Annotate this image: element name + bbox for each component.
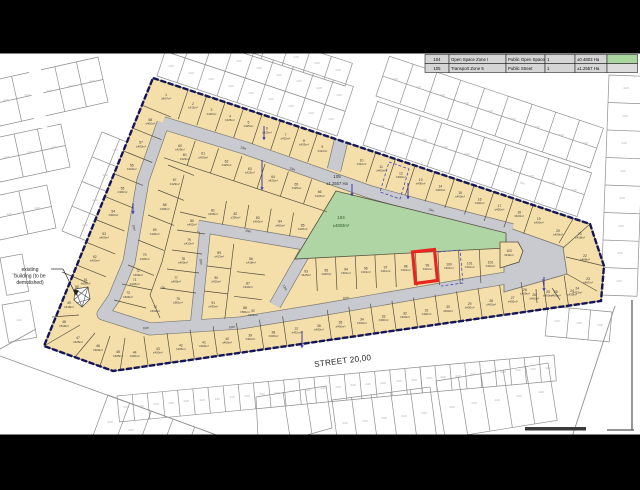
- svg-text:4x00: 4x00: [549, 181, 555, 185]
- svg-text:±400m²: ±400m²: [108, 213, 118, 217]
- svg-text:±400m²: ±400m²: [443, 309, 453, 313]
- svg-text:4x00: 4x00: [6, 212, 12, 216]
- svg-text:±400m²: ±400m²: [171, 280, 181, 284]
- svg-text:4x00: 4x00: [485, 371, 491, 375]
- svg-text:4x00: 4x00: [494, 398, 500, 402]
- svg-text:4x00: 4x00: [622, 114, 628, 118]
- svg-text:4x00: 4x00: [415, 85, 421, 89]
- svg-text:4x00: 4x00: [328, 117, 334, 121]
- svg-text:4x00: 4x00: [440, 375, 446, 379]
- svg-text:±400m²: ±400m²: [275, 223, 285, 227]
- svg-text:4x00: 4x00: [4, 155, 10, 159]
- svg-text:4x00: 4x00: [381, 416, 387, 420]
- svg-text:4x00: 4x00: [138, 404, 144, 408]
- svg-text:4x00: 4x00: [623, 86, 629, 90]
- svg-text:±418m²: ±418m²: [64, 305, 74, 309]
- svg-text:±400m²: ±400m²: [99, 236, 109, 240]
- svg-text:±412m²: ±412m²: [357, 162, 367, 166]
- svg-text:±400m²: ±400m²: [400, 315, 410, 319]
- svg-text:4x00: 4x00: [380, 381, 386, 385]
- svg-text:4x00: 4x00: [82, 223, 88, 227]
- svg-text:±519m²: ±519m²: [59, 324, 69, 328]
- svg-text:±436m²: ±436m²: [208, 212, 218, 216]
- svg-text:4x00: 4x00: [308, 111, 314, 115]
- svg-text:±400m²: ±400m²: [551, 293, 561, 297]
- svg-text:±401m²: ±401m²: [401, 268, 411, 272]
- svg-text:4x00: 4x00: [506, 167, 512, 171]
- svg-text:±408m²: ±408m²: [580, 258, 590, 262]
- svg-text:4x00: 4x00: [515, 368, 521, 372]
- svg-text:±405m²: ±405m²: [113, 354, 123, 358]
- svg-text:4x00: 4x00: [362, 419, 368, 423]
- svg-text:±400m²: ±400m²: [376, 169, 386, 173]
- svg-text:4x00: 4x00: [107, 420, 113, 424]
- svg-text:±425m²: ±425m²: [262, 130, 272, 134]
- svg-text:4x00: 4x00: [396, 379, 402, 383]
- svg-text:±420m²: ±420m²: [211, 279, 221, 283]
- svg-text:4x00: 4x00: [421, 411, 427, 415]
- svg-text:±413m²: ±413m²: [188, 106, 198, 110]
- svg-text:±400m²: ±400m²: [136, 144, 146, 148]
- svg-text:4x00: 4x00: [411, 378, 417, 382]
- svg-text:existing: existing: [22, 267, 39, 273]
- svg-text:±439m²: ±439m²: [208, 304, 218, 308]
- svg-text:4x00: 4x00: [112, 148, 118, 152]
- svg-text:±425m²: ±425m²: [281, 136, 291, 140]
- svg-text:4x00: 4x00: [3, 98, 9, 102]
- svg-text:±432m²: ±432m²: [504, 253, 514, 257]
- svg-text:±412m²: ±412m²: [317, 149, 327, 153]
- svg-text:±429m²: ±429m²: [170, 182, 180, 186]
- svg-text:±400m²: ±400m²: [357, 321, 367, 325]
- svg-text:4x00: 4x00: [516, 394, 522, 398]
- svg-text:4x00: 4x00: [89, 79, 95, 83]
- svg-text:±425m²: ±425m²: [245, 171, 255, 175]
- svg-text:4x00: 4x00: [128, 428, 134, 432]
- svg-text:demolished): demolished): [16, 280, 44, 286]
- svg-text:±1.2557 Ha: ±1.2557 Ha: [326, 181, 348, 186]
- svg-text:±406m²: ±406m²: [160, 207, 170, 211]
- svg-text:±429m²: ±429m²: [175, 148, 185, 152]
- svg-text:4x00: 4x00: [621, 141, 627, 145]
- svg-text:±400m²: ±400m²: [396, 175, 406, 179]
- svg-text:4x00: 4x00: [92, 198, 98, 202]
- svg-text:4x00: 4x00: [335, 68, 341, 72]
- svg-text:4x00: 4x00: [248, 91, 254, 95]
- svg-text:4x00: 4x00: [392, 77, 398, 81]
- svg-text:4x00: 4x00: [558, 133, 564, 137]
- svg-text:±401m²: ±401m²: [381, 269, 391, 273]
- svg-text:±425m²: ±425m²: [244, 124, 254, 128]
- svg-text:±413m²: ±413m²: [184, 242, 194, 246]
- svg-text:4x00: 4x00: [208, 77, 214, 81]
- svg-text:4x00: 4x00: [68, 84, 74, 88]
- svg-text:4x00: 4x00: [46, 89, 52, 93]
- svg-text:4x00: 4x00: [342, 421, 348, 425]
- svg-text:4x00: 4x00: [421, 138, 427, 142]
- svg-text:4x00: 4x00: [464, 152, 470, 156]
- svg-text:±400m²: ±400m²: [422, 312, 432, 316]
- svg-text:4x00: 4x00: [620, 169, 626, 173]
- svg-text:±425m²: ±425m²: [292, 186, 302, 190]
- svg-text:4x00: 4x00: [183, 399, 189, 403]
- svg-text:±425m²: ±425m²: [225, 118, 235, 122]
- svg-text:10m: 10m: [229, 325, 236, 329]
- svg-text:4x00: 4x00: [449, 405, 455, 409]
- svg-text:4x00: 4x00: [439, 93, 445, 97]
- svg-text:±4803m²: ±4803m²: [333, 223, 350, 228]
- svg-text:4x00: 4x00: [538, 390, 544, 394]
- svg-text:4x00: 4x00: [619, 196, 625, 200]
- svg-text:±461m²: ±461m²: [248, 313, 258, 317]
- svg-text:±425m²: ±425m²: [198, 155, 208, 159]
- svg-text:±406m²: ±406m²: [150, 232, 160, 236]
- svg-text:10m: 10m: [143, 326, 150, 330]
- svg-text:104: 104: [337, 215, 345, 220]
- svg-text:±433m²: ±433m²: [150, 309, 160, 313]
- svg-text:±400m²: ±400m²: [253, 220, 263, 224]
- svg-text:4x00: 4x00: [320, 386, 326, 390]
- svg-text:4x00: 4x00: [168, 64, 174, 68]
- svg-text:4x00: 4x00: [470, 372, 476, 376]
- svg-text:±401m²: ±401m²: [486, 264, 496, 268]
- svg-text:±406m²: ±406m²: [140, 257, 150, 261]
- svg-text:±396m²: ±396m²: [231, 216, 241, 220]
- svg-text:±400m²: ±400m²: [495, 208, 505, 212]
- svg-text:105: 105: [433, 66, 441, 71]
- svg-text:±400m²: ±400m²: [199, 344, 209, 348]
- svg-text:±400m²: ±400m²: [222, 341, 232, 345]
- svg-text:±467m²: ±467m²: [161, 97, 171, 101]
- svg-text:4x00: 4x00: [426, 376, 432, 380]
- svg-text:±400m²: ±400m²: [416, 182, 426, 186]
- svg-text:±400m²: ±400m²: [336, 324, 346, 328]
- svg-text:4x00: 4x00: [168, 401, 174, 405]
- svg-text:±400m²: ±400m²: [486, 303, 496, 307]
- svg-text:±400m²: ±400m²: [435, 188, 445, 192]
- svg-text:Transport Zone 5: Transport Zone 5: [451, 66, 484, 71]
- svg-text:4x00: 4x00: [296, 79, 302, 83]
- svg-text:4x00: 4x00: [455, 374, 461, 378]
- svg-text:4x00: 4x00: [188, 71, 194, 75]
- svg-text:4x00: 4x00: [350, 383, 356, 387]
- svg-text:4x00: 4x00: [378, 124, 384, 128]
- svg-text:±400m²: ±400m²: [508, 300, 518, 304]
- svg-text:Open Space Zone I: Open Space Zone I: [451, 57, 488, 62]
- svg-text:±401m²: ±401m²: [423, 267, 433, 271]
- svg-text:4x00: 4x00: [293, 55, 299, 59]
- svg-text:±425m²: ±425m²: [299, 143, 309, 147]
- svg-text:±426m²: ±426m²: [315, 194, 325, 198]
- svg-text:4x00: 4x00: [336, 93, 342, 97]
- svg-text:4x00: 4x00: [463, 101, 469, 105]
- svg-text:4x00: 4x00: [268, 97, 274, 101]
- svg-text:±1.2557 Ha: ±1.2557 Ha: [577, 66, 600, 71]
- svg-text:±400m²: ±400m²: [178, 261, 188, 265]
- svg-text:±400m²: ±400m²: [245, 337, 255, 341]
- svg-text:4x00: 4x00: [259, 392, 265, 396]
- svg-text:4x00: 4x00: [510, 117, 516, 121]
- svg-text:±429m²: ±429m²: [180, 157, 190, 161]
- svg-text:105: 105: [333, 174, 341, 179]
- svg-text:±497m²: ±497m²: [583, 281, 593, 285]
- svg-text:4x00: 4x00: [229, 395, 235, 399]
- svg-text:4x00: 4x00: [442, 145, 448, 149]
- svg-text:4x00: 4x00: [102, 173, 108, 177]
- svg-text:±400m²: ±400m²: [130, 354, 140, 358]
- svg-text:±425m²: ±425m²: [222, 163, 232, 167]
- svg-text:4x00: 4x00: [616, 279, 622, 283]
- svg-text:4x00: 4x00: [274, 391, 280, 395]
- svg-text:±400m²: ±400m²: [314, 327, 324, 331]
- svg-text:4x00: 4x00: [236, 59, 242, 63]
- svg-text:4x00: 4x00: [228, 84, 234, 88]
- svg-text:±401m²: ±401m²: [465, 265, 475, 269]
- svg-text:±400m²: ±400m²: [145, 122, 155, 126]
- svg-text:±400m²: ±400m²: [553, 233, 563, 237]
- svg-text:±402m²: ±402m²: [187, 223, 197, 227]
- svg-text:4x00: 4x00: [487, 109, 493, 113]
- svg-text:4x00: 4x00: [528, 174, 534, 178]
- svg-text:Public Open Space: Public Open Space: [508, 57, 545, 62]
- svg-text:4x00: 4x00: [153, 402, 159, 406]
- svg-text:±418m²: ±418m²: [246, 261, 256, 265]
- svg-text:4x00: 4x00: [289, 389, 295, 393]
- svg-text:4x00: 4x00: [256, 66, 262, 70]
- svg-text:±400m²: ±400m²: [127, 167, 137, 171]
- svg-text:±406m²: ±406m²: [130, 282, 140, 286]
- svg-text:±433m²: ±433m²: [572, 290, 582, 294]
- svg-text:building (to be: building (to be: [14, 274, 46, 280]
- svg-text:±400m²: ±400m²: [93, 348, 103, 352]
- svg-text:±400m²: ±400m²: [475, 201, 485, 205]
- svg-text:4x00: 4x00: [276, 73, 282, 77]
- svg-text:4x00: 4x00: [316, 86, 322, 90]
- svg-text:±425m²: ±425m²: [321, 272, 331, 276]
- svg-text:±425m²: ±425m²: [268, 178, 278, 182]
- svg-text:±425m²: ±425m²: [301, 273, 311, 277]
- svg-text:±400m²: ±400m²: [379, 318, 389, 322]
- svg-text:±401m²: ±401m²: [444, 266, 454, 270]
- svg-text:4x00: 4x00: [365, 382, 371, 386]
- svg-text:4x00: 4x00: [51, 145, 57, 149]
- svg-text:4x00: 4x00: [534, 125, 540, 129]
- svg-text:Public Street: Public Street: [508, 66, 533, 71]
- svg-text:±400m²: ±400m²: [90, 259, 100, 263]
- svg-text:4x00: 4x00: [16, 318, 22, 322]
- svg-text:4x00: 4x00: [24, 93, 30, 97]
- svg-text:±406m²: ±406m²: [133, 273, 143, 277]
- svg-text:±405m²: ±405m²: [176, 347, 186, 351]
- svg-text:4x00: 4x00: [571, 188, 577, 192]
- svg-text:4x00: 4x00: [34, 206, 40, 210]
- svg-text:±432m²: ±432m²: [292, 331, 302, 335]
- svg-text:4x00: 4x00: [288, 104, 294, 108]
- svg-text:4x00: 4x00: [576, 321, 582, 325]
- svg-text:±425m²: ±425m²: [207, 112, 217, 116]
- svg-text:4x00: 4x00: [314, 61, 320, 65]
- svg-text:4x00: 4x00: [199, 398, 205, 402]
- svg-text:4x00: 4x00: [618, 224, 624, 228]
- svg-text:±401m²: ±401m²: [361, 270, 371, 274]
- svg-text:±406m²: ±406m²: [123, 295, 133, 299]
- svg-text:±401m²: ±401m²: [341, 271, 351, 275]
- svg-text:4x00: 4x00: [485, 160, 491, 164]
- svg-text:±426m²: ±426m²: [298, 227, 308, 231]
- svg-text:4x00: 4x00: [530, 367, 536, 371]
- svg-text:4x00: 4x00: [305, 388, 311, 392]
- svg-text:±400m²: ±400m²: [153, 351, 163, 355]
- svg-text:4x00: 4x00: [401, 414, 407, 418]
- svg-text:4x00: 4x00: [597, 323, 603, 327]
- svg-text:±400m²: ±400m²: [455, 195, 465, 199]
- svg-text:4x00: 4x00: [617, 251, 623, 255]
- svg-text:±418m²: ±418m²: [575, 236, 585, 240]
- svg-text:104: 104: [433, 57, 441, 62]
- svg-text:±413m²: ±413m²: [214, 254, 224, 258]
- svg-text:4x00: 4x00: [582, 141, 588, 145]
- svg-text:4x00: 4x00: [500, 370, 506, 374]
- svg-text:76: 76: [161, 286, 165, 290]
- svg-text:4x00: 4x00: [335, 385, 341, 389]
- svg-text:±400m²: ±400m²: [514, 214, 524, 218]
- svg-text:4x00: 4x00: [545, 366, 551, 370]
- svg-text:±400m²: ±400m²: [269, 334, 279, 338]
- svg-text:4x00: 4x00: [214, 397, 220, 401]
- svg-text:±425m²: ±425m²: [73, 340, 83, 344]
- svg-text:±400m²: ±400m²: [529, 297, 539, 301]
- svg-text:±400m²: ±400m²: [520, 292, 530, 296]
- svg-text:4x00: 4x00: [399, 131, 405, 135]
- svg-text:±430m²: ±430m²: [243, 285, 253, 289]
- svg-text:4x00: 4x00: [471, 401, 477, 405]
- svg-text:4x00: 4x00: [244, 394, 250, 398]
- svg-text:±400m²: ±400m²: [465, 306, 475, 310]
- svg-text:±561m²: ±561m²: [173, 301, 183, 305]
- svg-text:±400m²: ±400m²: [118, 190, 128, 194]
- svg-text:4x00: 4x00: [554, 319, 560, 323]
- svg-text:4x00: 4x00: [27, 150, 33, 154]
- svg-text:±0.4803 Ha: ±0.4803 Ha: [577, 57, 600, 62]
- svg-text:±400m²: ±400m²: [534, 221, 544, 225]
- svg-text:4x00: 4x00: [123, 405, 129, 409]
